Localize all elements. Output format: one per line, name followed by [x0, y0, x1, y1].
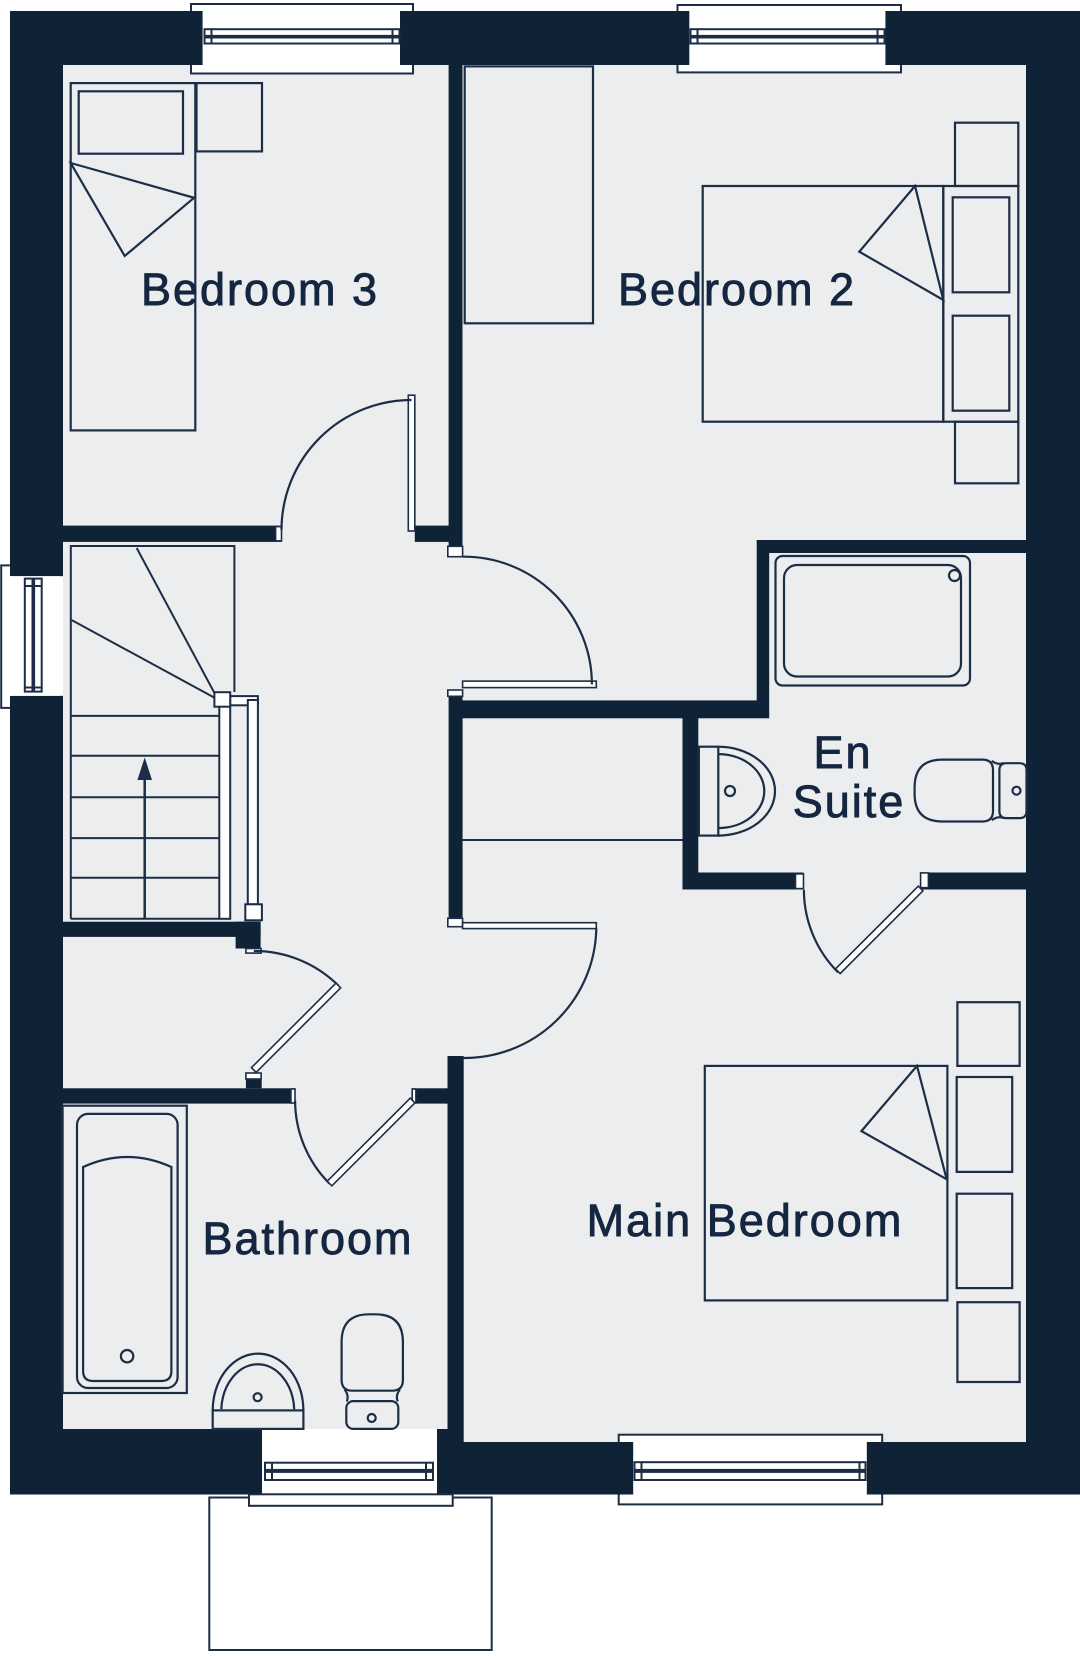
svg-text:Bathroom: Bathroom [202, 1213, 413, 1264]
svg-text:Suite: Suite [793, 776, 906, 827]
svg-text:Bedroom 3: Bedroom 3 [141, 264, 379, 315]
svg-text:Main Bedroom: Main Bedroom [587, 1195, 904, 1246]
svg-text:En: En [813, 727, 872, 778]
svg-text:Bedroom 2: Bedroom 2 [618, 264, 856, 315]
